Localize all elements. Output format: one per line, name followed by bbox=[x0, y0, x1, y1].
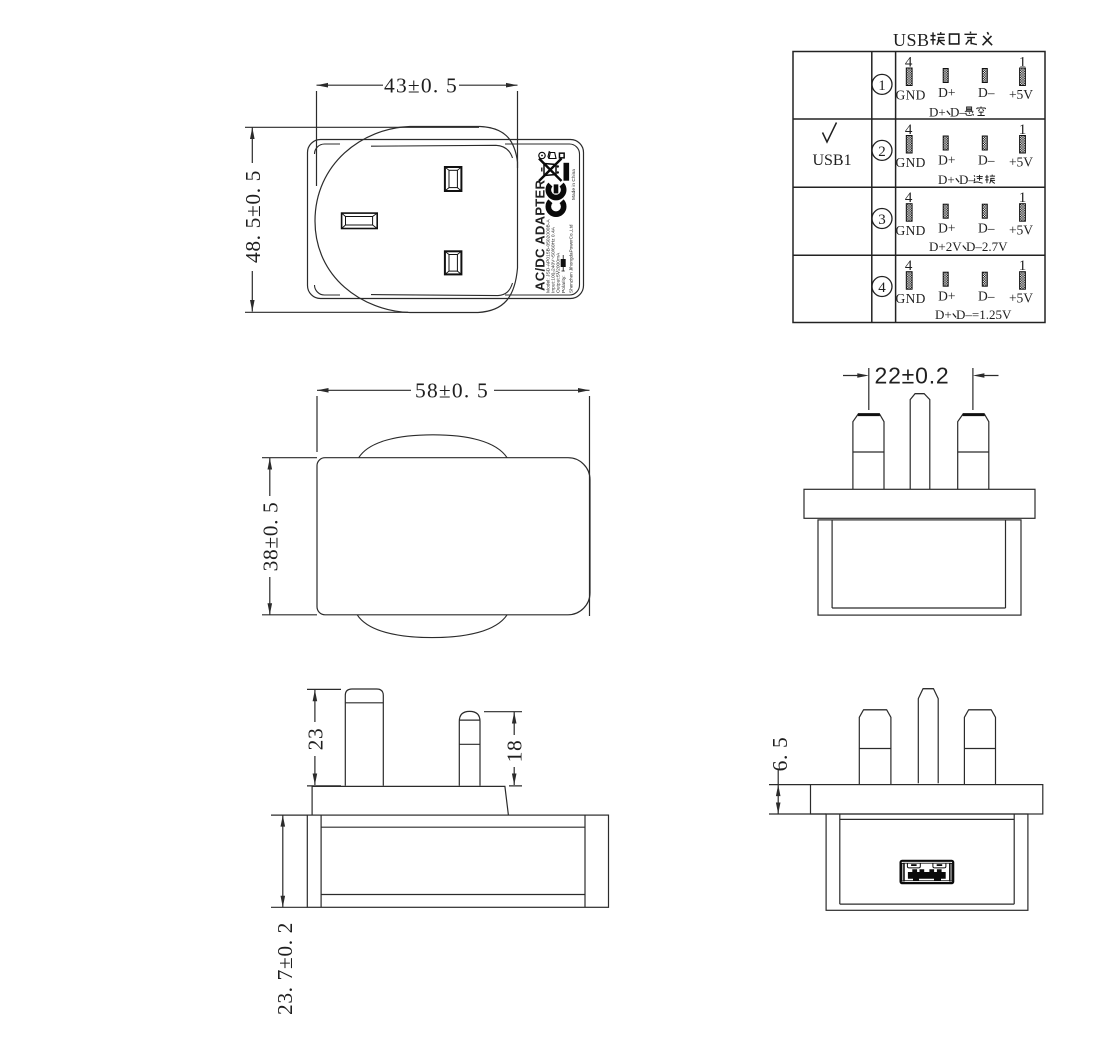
svg-text:D–: D– bbox=[978, 289, 995, 304]
svg-text:2: 2 bbox=[878, 144, 886, 160]
svg-text:+5V: +5V bbox=[1009, 87, 1033, 102]
svg-text:Shenzhen JihongdaPowerCo.,Ltd: Shenzhen JihongdaPowerCo.,Ltd bbox=[569, 224, 574, 293]
svg-text:+5V: +5V bbox=[1009, 291, 1033, 306]
svg-text:GND: GND bbox=[896, 291, 926, 306]
svg-text:Polarity:: Polarity: bbox=[561, 275, 567, 293]
svg-text:GND: GND bbox=[896, 223, 926, 238]
svg-text:D+: D+ bbox=[929, 105, 946, 120]
svg-text:D–: D– bbox=[978, 85, 995, 100]
svg-text:D+: D+ bbox=[938, 153, 955, 168]
svg-text:GND: GND bbox=[896, 155, 926, 170]
svg-text:23. 7±0. 2: 23. 7±0. 2 bbox=[273, 922, 297, 1015]
svg-text:22±0.2: 22±0.2 bbox=[875, 363, 950, 389]
svg-text:D–=1.25V: D–=1.25V bbox=[956, 307, 1012, 322]
svg-text:+5V: +5V bbox=[1009, 155, 1033, 170]
svg-text:Made in China: Made in China bbox=[571, 169, 577, 200]
svg-text:USB1: USB1 bbox=[812, 152, 851, 169]
svg-text:D+: D+ bbox=[935, 307, 952, 322]
svg-text:1: 1 bbox=[878, 78, 886, 94]
svg-text:+5V: +5V bbox=[1009, 223, 1033, 238]
svg-text:3: 3 bbox=[878, 212, 886, 228]
svg-text:AC/DC ADAPTER: AC/DC ADAPTER bbox=[533, 179, 548, 291]
svg-text:D+: D+ bbox=[938, 85, 955, 100]
svg-text:GND: GND bbox=[896, 88, 926, 103]
svg-text:D–: D– bbox=[950, 105, 966, 120]
svg-text:D+: D+ bbox=[938, 172, 955, 187]
svg-text:D+2V: D+2V bbox=[929, 239, 962, 254]
svg-text:43±0. 5: 43±0. 5 bbox=[384, 74, 458, 98]
svg-text:18: 18 bbox=[503, 740, 527, 763]
svg-text:4: 4 bbox=[878, 280, 886, 296]
svg-text:D–2.7V: D–2.7V bbox=[966, 239, 1008, 254]
svg-text:D+: D+ bbox=[938, 289, 955, 304]
svg-text:Output:5V⃛2000mA: Output:5V⃛2000mA bbox=[554, 252, 561, 293]
svg-text:USB: USB bbox=[893, 30, 930, 50]
svg-text:48. 5±0. 5: 48. 5±0. 5 bbox=[241, 170, 265, 263]
svg-text:38±0. 5: 38±0. 5 bbox=[258, 502, 282, 572]
svg-text:D–: D– bbox=[978, 153, 995, 168]
svg-text:58±0. 5: 58±0. 5 bbox=[415, 379, 489, 403]
svg-text:D–: D– bbox=[978, 221, 995, 236]
svg-text:D+: D+ bbox=[938, 221, 955, 236]
svg-text:D–: D– bbox=[959, 172, 975, 187]
svg-text:23: 23 bbox=[303, 728, 327, 751]
svg-text:6. 5: 6. 5 bbox=[768, 737, 792, 772]
